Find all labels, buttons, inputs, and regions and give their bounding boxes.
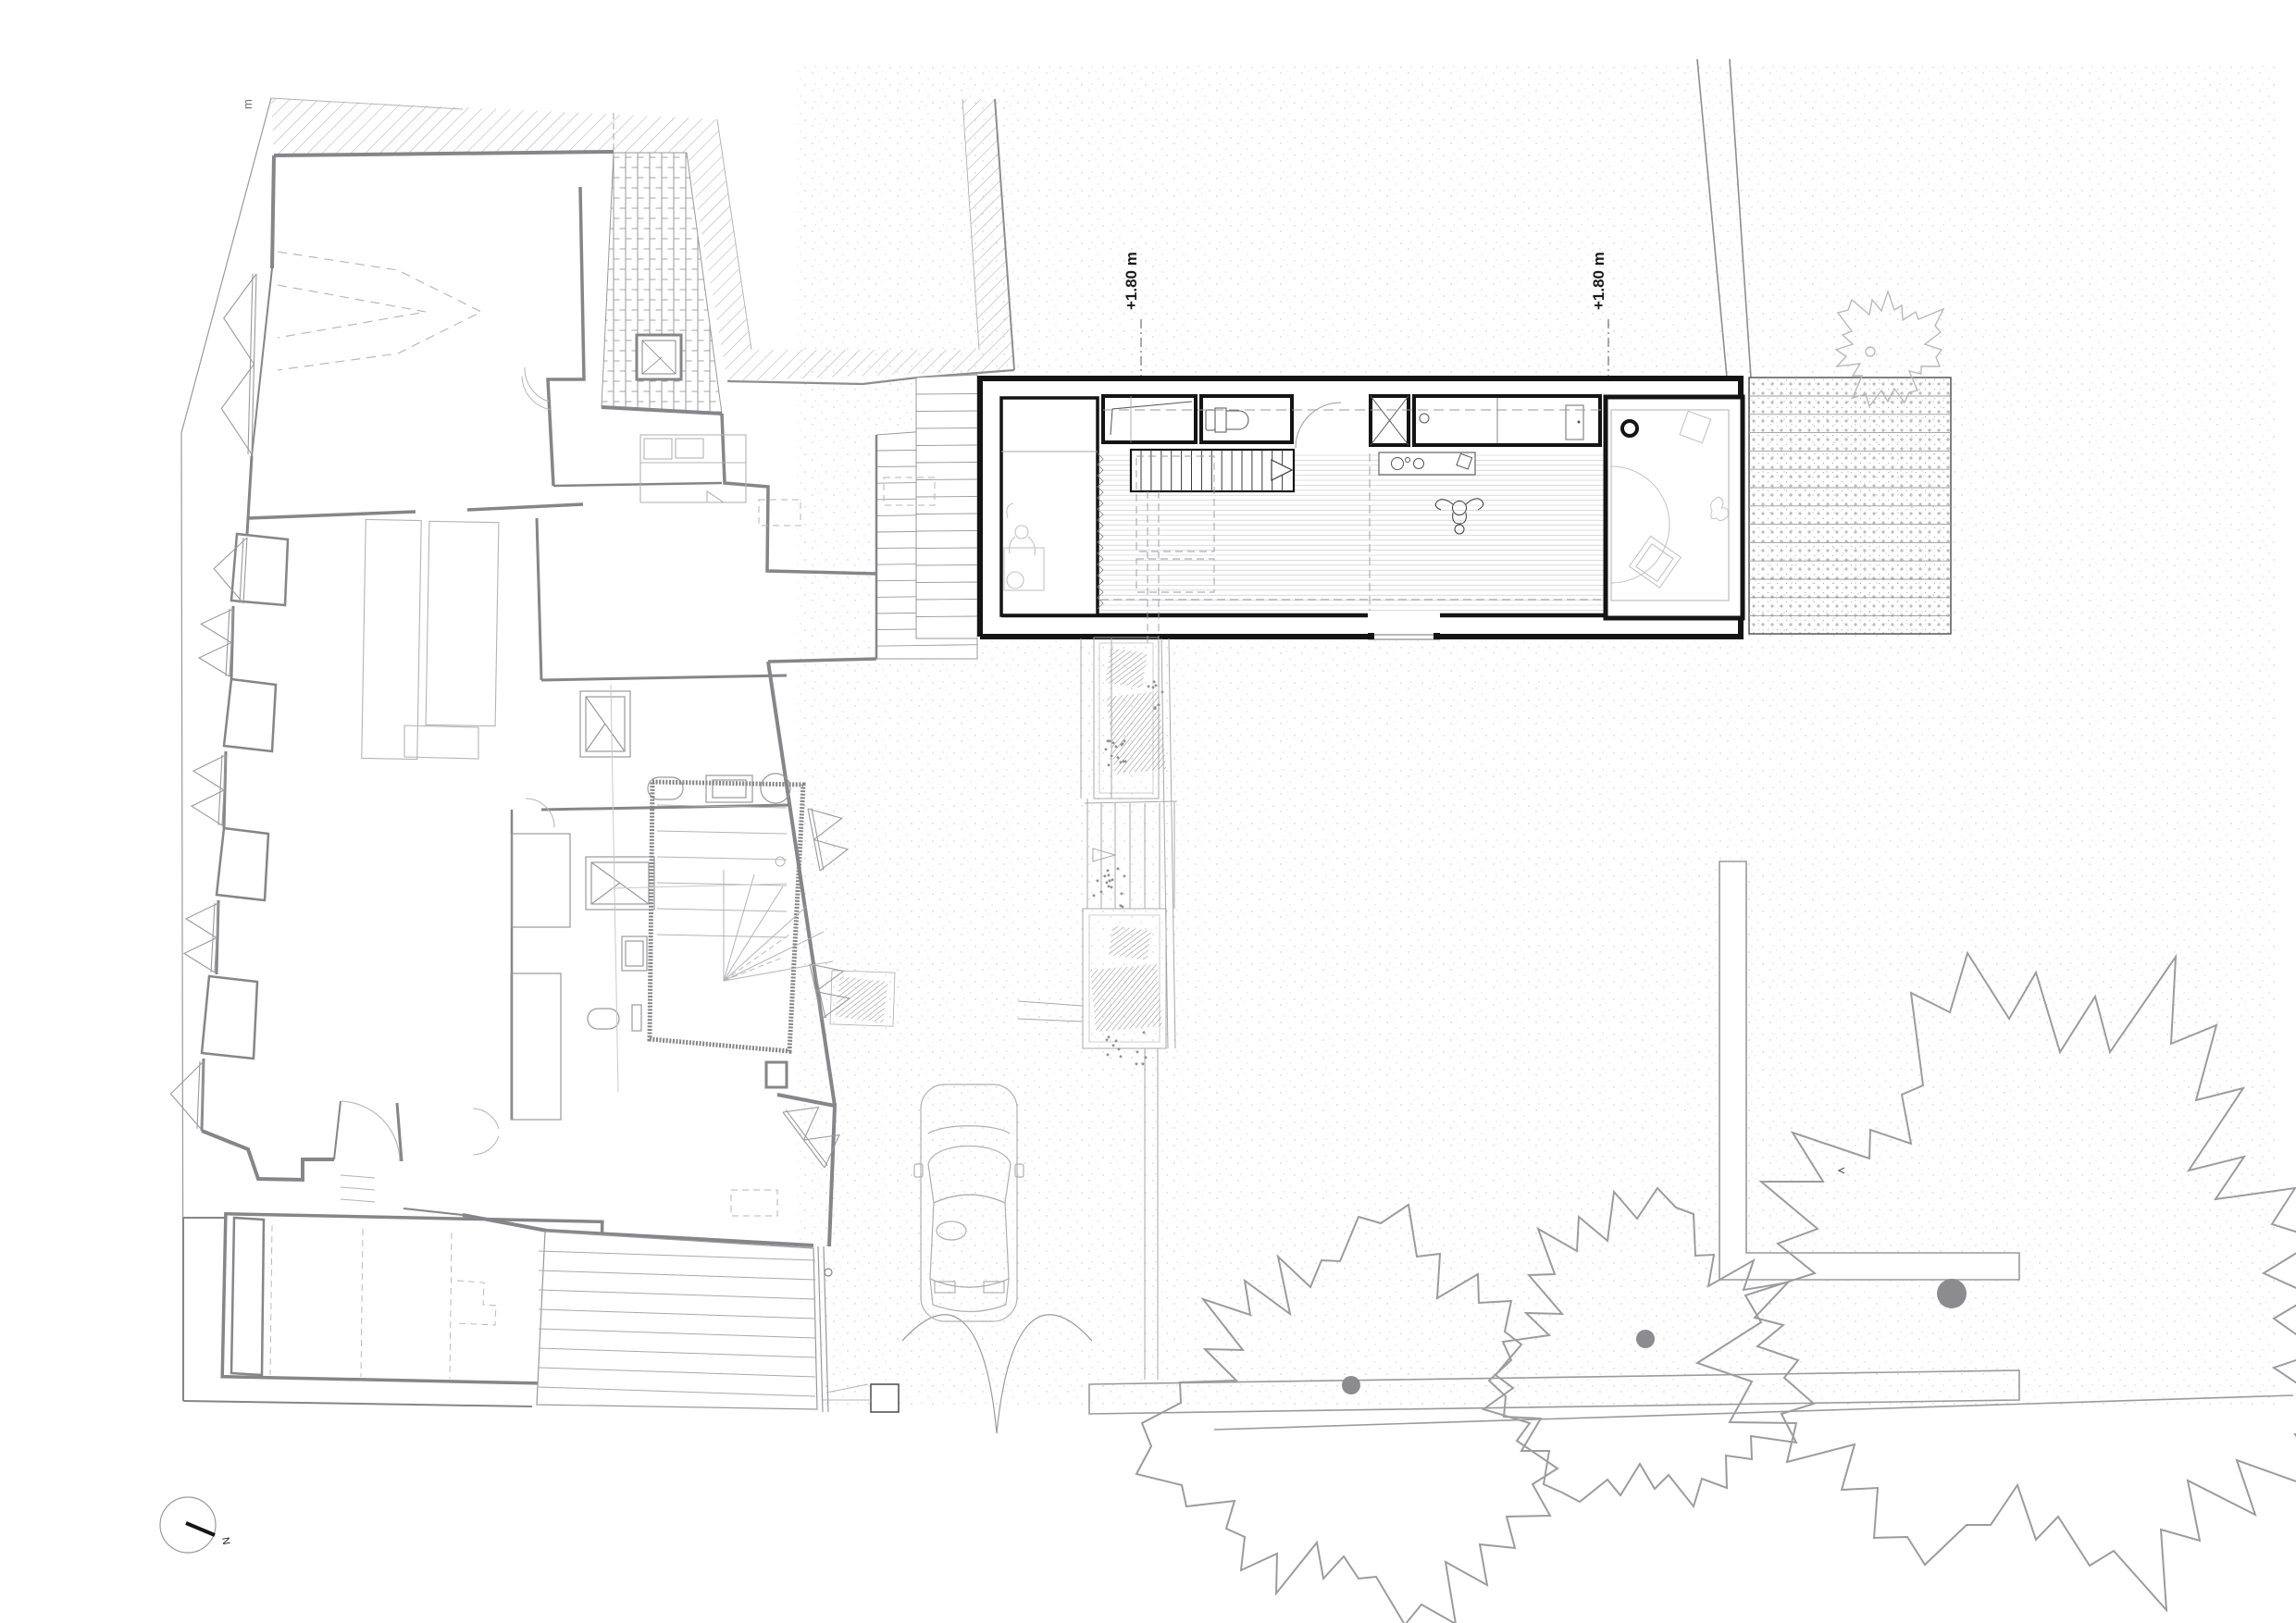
- svg-text:+1.80 m: +1.80 m: [1123, 252, 1140, 310]
- svg-text:m: m: [241, 99, 254, 109]
- svg-text:+1.80 m: +1.80 m: [1590, 252, 1607, 310]
